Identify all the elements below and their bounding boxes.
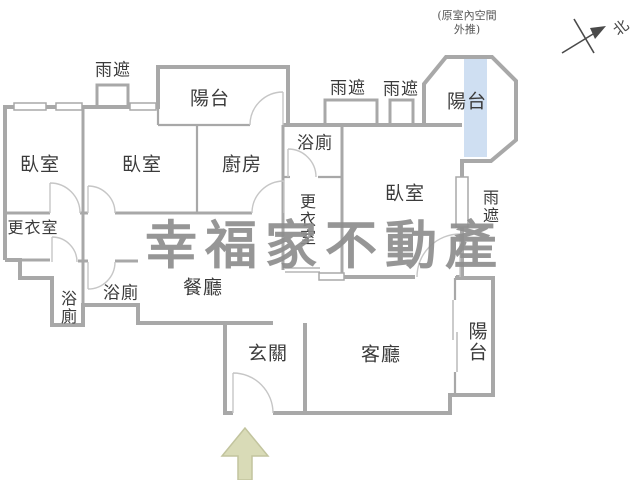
- room-label-balcony-right: 陽台: [464, 321, 491, 363]
- room-label-balcony-octagon: 陽台: [447, 87, 487, 114]
- room-label-bedroom-left: 臥室: [20, 150, 60, 177]
- label-canopy-mid-left: 雨遮: [330, 74, 366, 99]
- compass-icon: [562, 19, 606, 53]
- room-label-bath-left-small: 浴廁: [55, 290, 79, 326]
- watermark: 幸福家不動產: [145, 204, 505, 279]
- annotation-line2: 外推): [454, 21, 480, 37]
- label-canopy-top-left: 雨遮: [95, 56, 131, 81]
- floor-plan: 臥室 臥室 廚房 陽台 雨遮 浴廁 雨遮 雨遮 陽台 更衣室 更衣室 臥室 雨遮…: [0, 0, 640, 480]
- room-label-bath-top: 浴廁: [297, 129, 333, 154]
- room-label-balcony-top: 陽台: [190, 84, 230, 111]
- room-label-kitchen: 廚房: [222, 150, 262, 177]
- room-label-living: 客廳: [361, 340, 401, 367]
- room-label-bedroom-middle: 臥室: [122, 150, 162, 177]
- room-label-closet-left: 更衣室: [7, 214, 58, 238]
- entrance-arrow: [222, 428, 268, 480]
- room-label-foyer: 玄關: [248, 339, 288, 366]
- room-label-bath-left-wide: 浴廁: [103, 279, 139, 304]
- room-label-bedroom-right: 臥室: [385, 179, 425, 206]
- label-canopy-mid-right: 雨遮: [383, 75, 419, 100]
